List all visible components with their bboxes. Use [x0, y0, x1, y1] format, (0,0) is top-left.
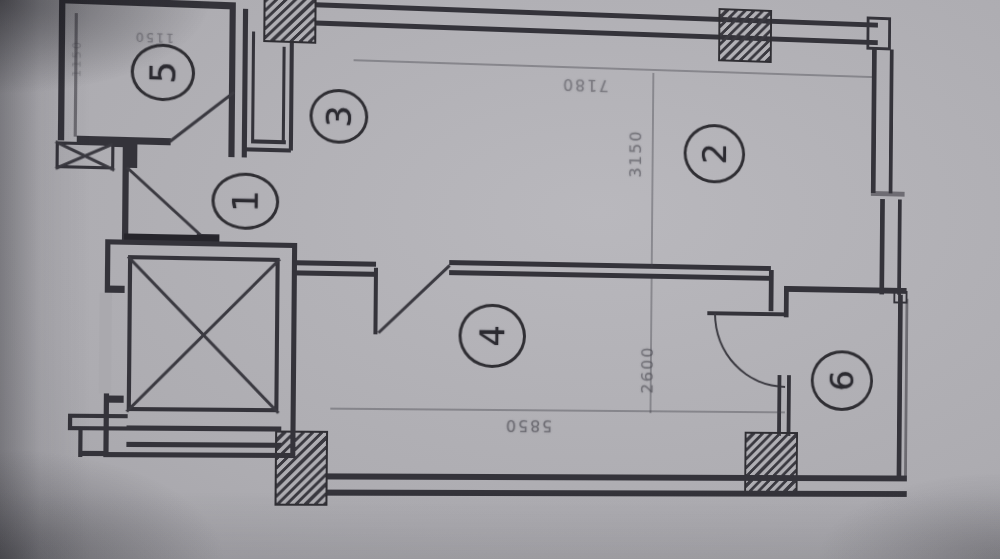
- corridor-door-jamb-leg: [123, 147, 138, 168]
- room6-door-swing-arc: [713, 313, 785, 388]
- column-top-center: [263, 0, 316, 44]
- entrance-door-swing: [126, 166, 204, 238]
- room-number-2: 2: [695, 143, 734, 165]
- room-number-1: 1: [225, 190, 266, 213]
- room6-left-wall-jog: [769, 270, 774, 311]
- room-number-6: 6: [823, 370, 861, 392]
- elevator-pit-line-b: [126, 442, 281, 448]
- elevator-pit-line-a: [127, 425, 282, 431]
- room-marker-6: 6: [811, 350, 874, 411]
- dimension-text-7180-0: 7180: [561, 74, 609, 94]
- bottom-wall-inner: [328, 490, 907, 497]
- right-wall-upper-b: [889, 49, 894, 193]
- room5-wall-right-outer: [228, 2, 236, 157]
- right-wall-sill-tick: [871, 191, 905, 197]
- duct-wall-right-inner: [282, 47, 286, 143]
- duct-wall-bottom-outer: [242, 147, 291, 152]
- room-marker-4: 4: [458, 303, 526, 368]
- dimension-text-3150-1: 3150: [626, 129, 645, 178]
- room4-door-swing: [377, 264, 450, 334]
- dimension-text-1150-4: 1150: [134, 29, 174, 45]
- room6-wall-below-door-a: [777, 375, 781, 436]
- pier-top-right: [866, 16, 891, 50]
- duct-wall-left-inner: [251, 31, 255, 143]
- step-bar-bottom: [68, 426, 128, 431]
- dimension-line-5850: [330, 408, 785, 414]
- divider-wall-right-inner: [449, 270, 771, 281]
- room6-wall-right-b: [904, 299, 908, 476]
- column-bottom-right: [744, 432, 798, 493]
- room5-wall-top: [59, 0, 236, 10]
- right-wall-mid-a: [879, 199, 884, 294]
- right-wall-upper-a: [871, 49, 877, 193]
- column-top-right: [718, 8, 772, 63]
- dimension-text-2600-2: 2600: [638, 345, 657, 393]
- room-number-4: 4: [472, 325, 512, 347]
- room-marker-3: 3: [309, 88, 368, 144]
- dimension-line-3150: [651, 73, 655, 267]
- divider-wall-left-outer: [295, 260, 376, 267]
- room-marker-1: 1: [211, 172, 279, 231]
- divider-wall-left-inner: [295, 270, 376, 276]
- room-marker-5: 5: [130, 43, 195, 102]
- elevator-door-tick-bottom: [104, 395, 124, 402]
- room6-wall-top: [786, 286, 907, 294]
- divider-wall-right-outer: [449, 260, 771, 271]
- step-link: [78, 451, 107, 456]
- duct-wall-right-outer: [289, 43, 294, 151]
- room4-door-jamb: [373, 268, 378, 335]
- room-number-5: 5: [142, 61, 184, 84]
- room5-wall-left: [58, 0, 66, 140]
- room6-wall-below-door-b: [787, 375, 791, 436]
- elevator-door-opening: [99, 293, 112, 394]
- room5-door-swing: [169, 91, 236, 143]
- room-number-3: 3: [319, 105, 360, 128]
- step-bar-cap: [68, 414, 72, 431]
- corridor-wall-left: [122, 168, 129, 242]
- dimension-text-1150-5: 1150: [69, 40, 83, 78]
- photo-paper-background: 123456 718031502600585011501150: [0, 0, 1000, 559]
- corridor-door-jamb: [112, 139, 137, 148]
- dimension-line-7180: [354, 59, 872, 78]
- step-bar-top: [68, 414, 128, 419]
- room-marker-2: 2: [683, 123, 745, 184]
- right-wall-mid-b: [897, 199, 902, 294]
- elevator-door-tick-top: [105, 285, 125, 293]
- room6-wall-right-a: [897, 295, 903, 476]
- dimension-text-5850-3: 5850: [504, 416, 552, 435]
- floor-plan-drawing: 123456 718031502600585011501150: [0, 0, 980, 559]
- duct-wall-bottom-inner: [251, 139, 286, 144]
- bottom-wall-outer: [328, 473, 907, 481]
